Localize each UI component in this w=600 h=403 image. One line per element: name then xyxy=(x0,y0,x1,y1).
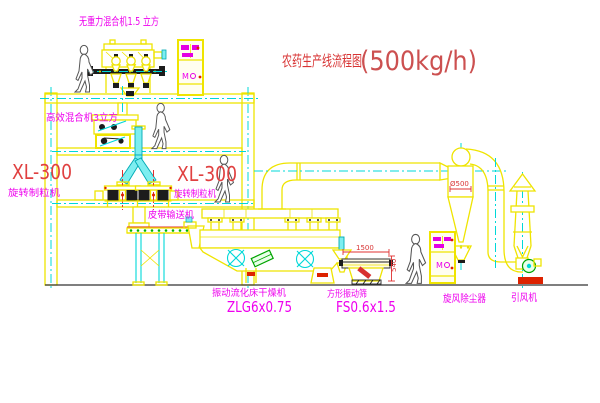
label-screen-model: FS0.6x1.5 xyxy=(336,298,396,316)
control-cabinet-1: M xyxy=(178,40,203,95)
person-figure-4 xyxy=(406,234,425,283)
vibrating-screen: 1500 540 xyxy=(333,237,398,284)
screen-height-dim: 540 xyxy=(390,259,398,272)
dryer-exhaust-stubs xyxy=(208,218,340,230)
label-granulator-right-model: XL-300 xyxy=(177,162,237,186)
label-dryer-model: ZLG6x0.75 xyxy=(227,298,292,316)
chute-flange xyxy=(129,223,149,227)
induced-draft-fan xyxy=(516,258,543,284)
process-flow-diagram: M xyxy=(0,0,600,403)
granulator-discharge-chute xyxy=(133,207,145,223)
label-granulator-left-model: XL-300 xyxy=(12,160,72,184)
label-granulator-right-name: 旋转制粒机 xyxy=(174,188,216,200)
label-gravity-free-mixer: 无重力混合机1.5 立方 xyxy=(79,14,159,28)
person-figure-1 xyxy=(75,45,94,92)
cabinet1-motor-marking: M xyxy=(182,72,189,81)
belt-conveyor xyxy=(127,227,196,285)
cad-canvas: M xyxy=(0,0,600,403)
screen-length-dim: 1500 xyxy=(356,244,374,252)
fluid-bed-dryer xyxy=(184,209,347,283)
gravity-free-mixer xyxy=(85,40,168,96)
label-belt-conveyor: 皮带输送机 xyxy=(148,209,194,221)
cabinet2-motor-marking: M xyxy=(436,261,443,270)
person-figure-2 xyxy=(152,103,170,148)
page-title: 农药生产线流程图 xyxy=(282,52,362,70)
page-title-capacity: (500kg/h) xyxy=(360,46,477,77)
label-cyclone: 旋风除尘器 xyxy=(443,292,486,305)
cyclone-diameter-dim: Ø500 xyxy=(450,180,469,188)
label-granulator-left-name: 旋转制粒机 xyxy=(8,187,61,199)
label-high-efficiency-mixer: 高效混合机3立方 xyxy=(46,111,118,124)
mixer-valve-units xyxy=(111,54,151,88)
label-fan: 引风机 xyxy=(511,291,537,304)
control-cabinet-2: M xyxy=(430,232,455,283)
